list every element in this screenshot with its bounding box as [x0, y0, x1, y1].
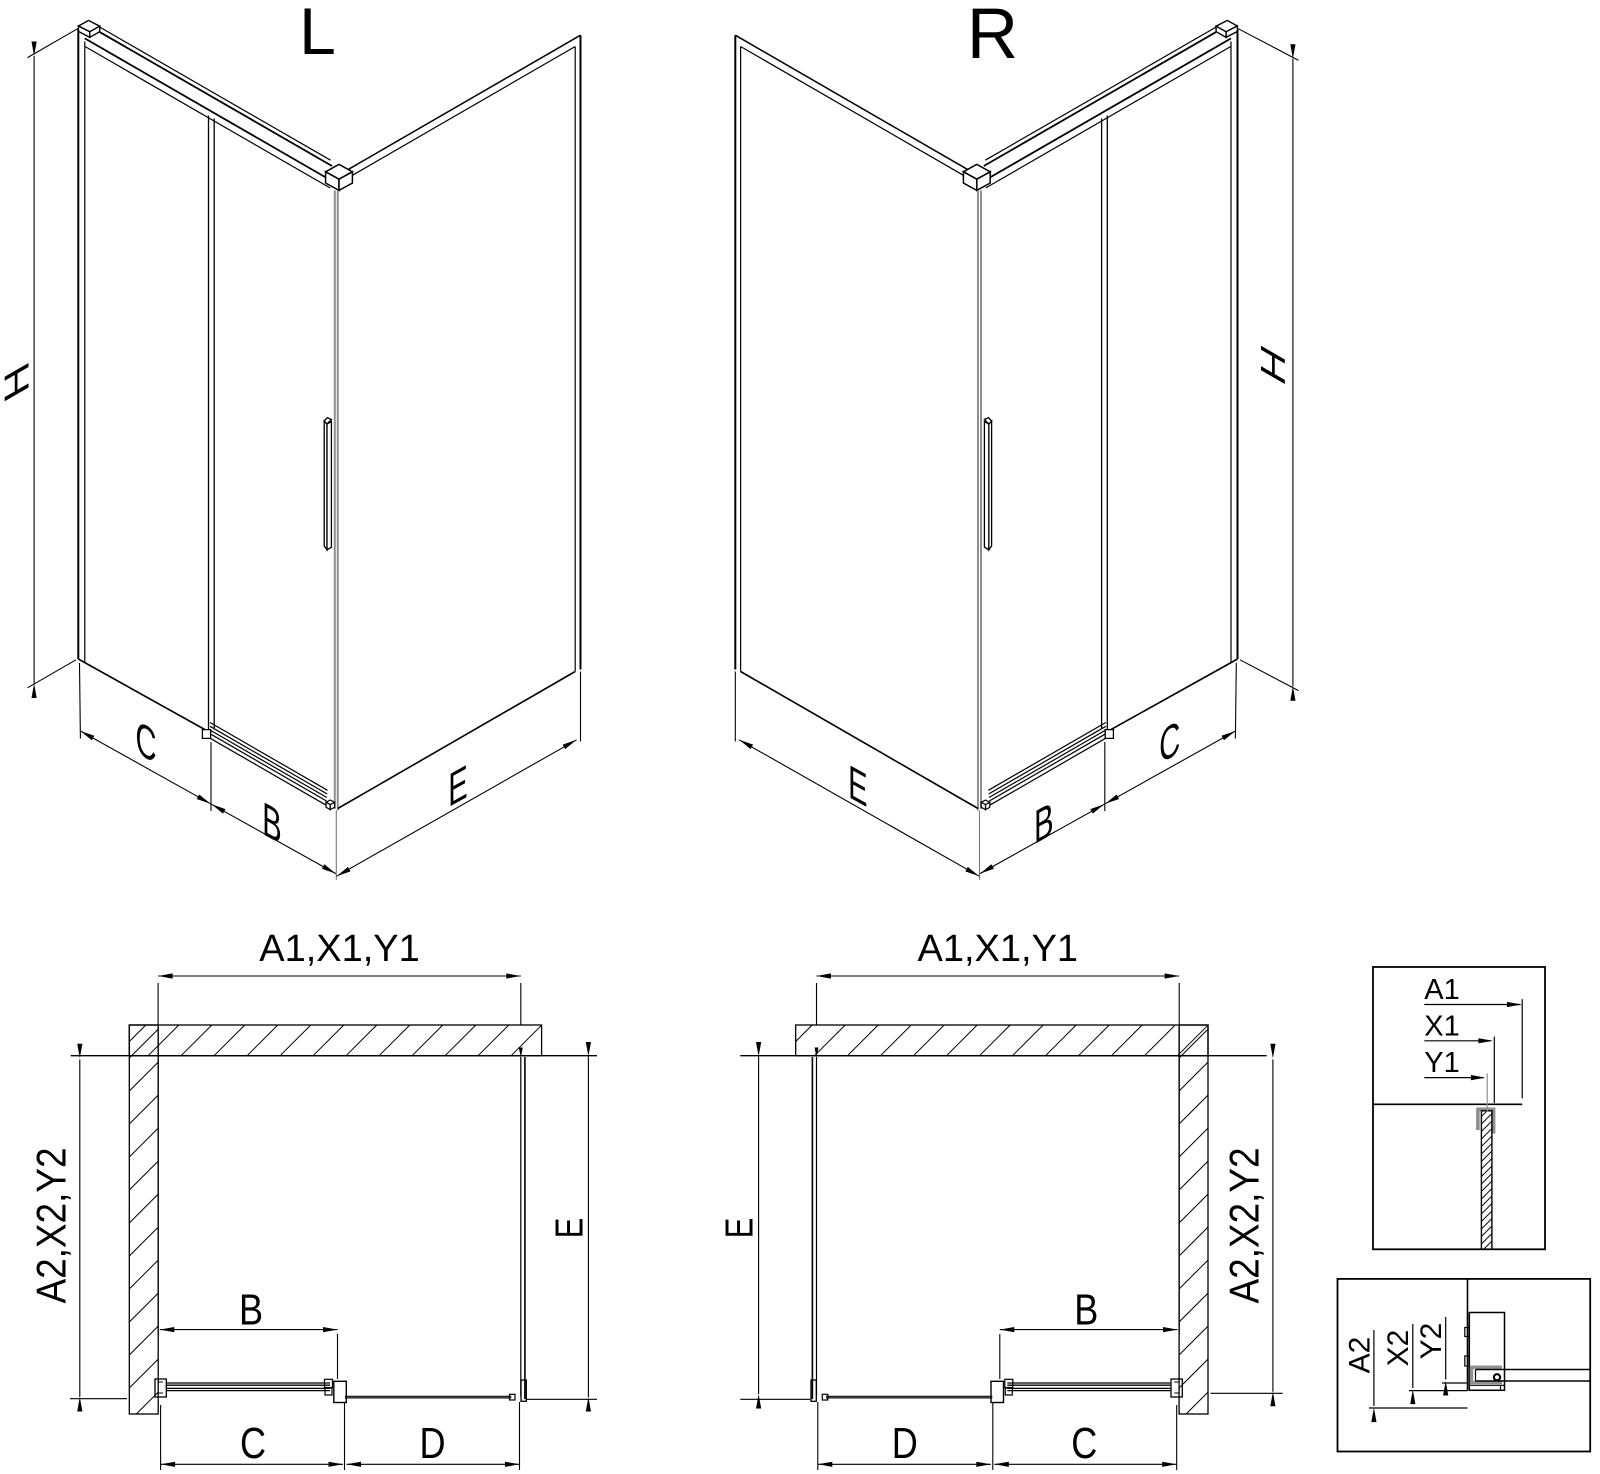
svg-text:E: E: [718, 1218, 761, 1239]
svg-text:C: C: [1071, 1419, 1097, 1468]
svg-text:D: D: [419, 1419, 445, 1468]
svg-text:A2,X2,Y2: A2,X2,Y2: [1221, 1147, 1268, 1303]
svg-text:D: D: [892, 1419, 918, 1468]
svg-text:E: E: [848, 754, 867, 818]
svg-text:B: B: [1074, 1285, 1098, 1334]
svg-text:A2: A2: [1344, 1337, 1377, 1374]
svg-text:A2,X2,Y2: A2,X2,Y2: [28, 1147, 75, 1303]
svg-text:X1: X1: [1424, 1010, 1459, 1042]
svg-text:A1,X1,Y1: A1,X1,Y1: [918, 928, 1079, 970]
svg-text:Y1: Y1: [1424, 1047, 1459, 1079]
svg-text:Y2: Y2: [1415, 1323, 1448, 1360]
svg-text:A1,X1,Y1: A1,X1,Y1: [259, 928, 420, 970]
svg-text:C: C: [240, 1419, 266, 1468]
svg-text:L: L: [299, 0, 336, 68]
svg-text:R: R: [967, 0, 1018, 74]
svg-text:E: E: [548, 1218, 591, 1239]
svg-text:B: B: [262, 791, 281, 855]
svg-text:A1: A1: [1424, 974, 1459, 1006]
svg-text:E: E: [448, 754, 467, 818]
svg-text:B: B: [1034, 791, 1053, 855]
svg-text:B: B: [239, 1285, 263, 1334]
svg-text:X2: X2: [1382, 1330, 1415, 1367]
